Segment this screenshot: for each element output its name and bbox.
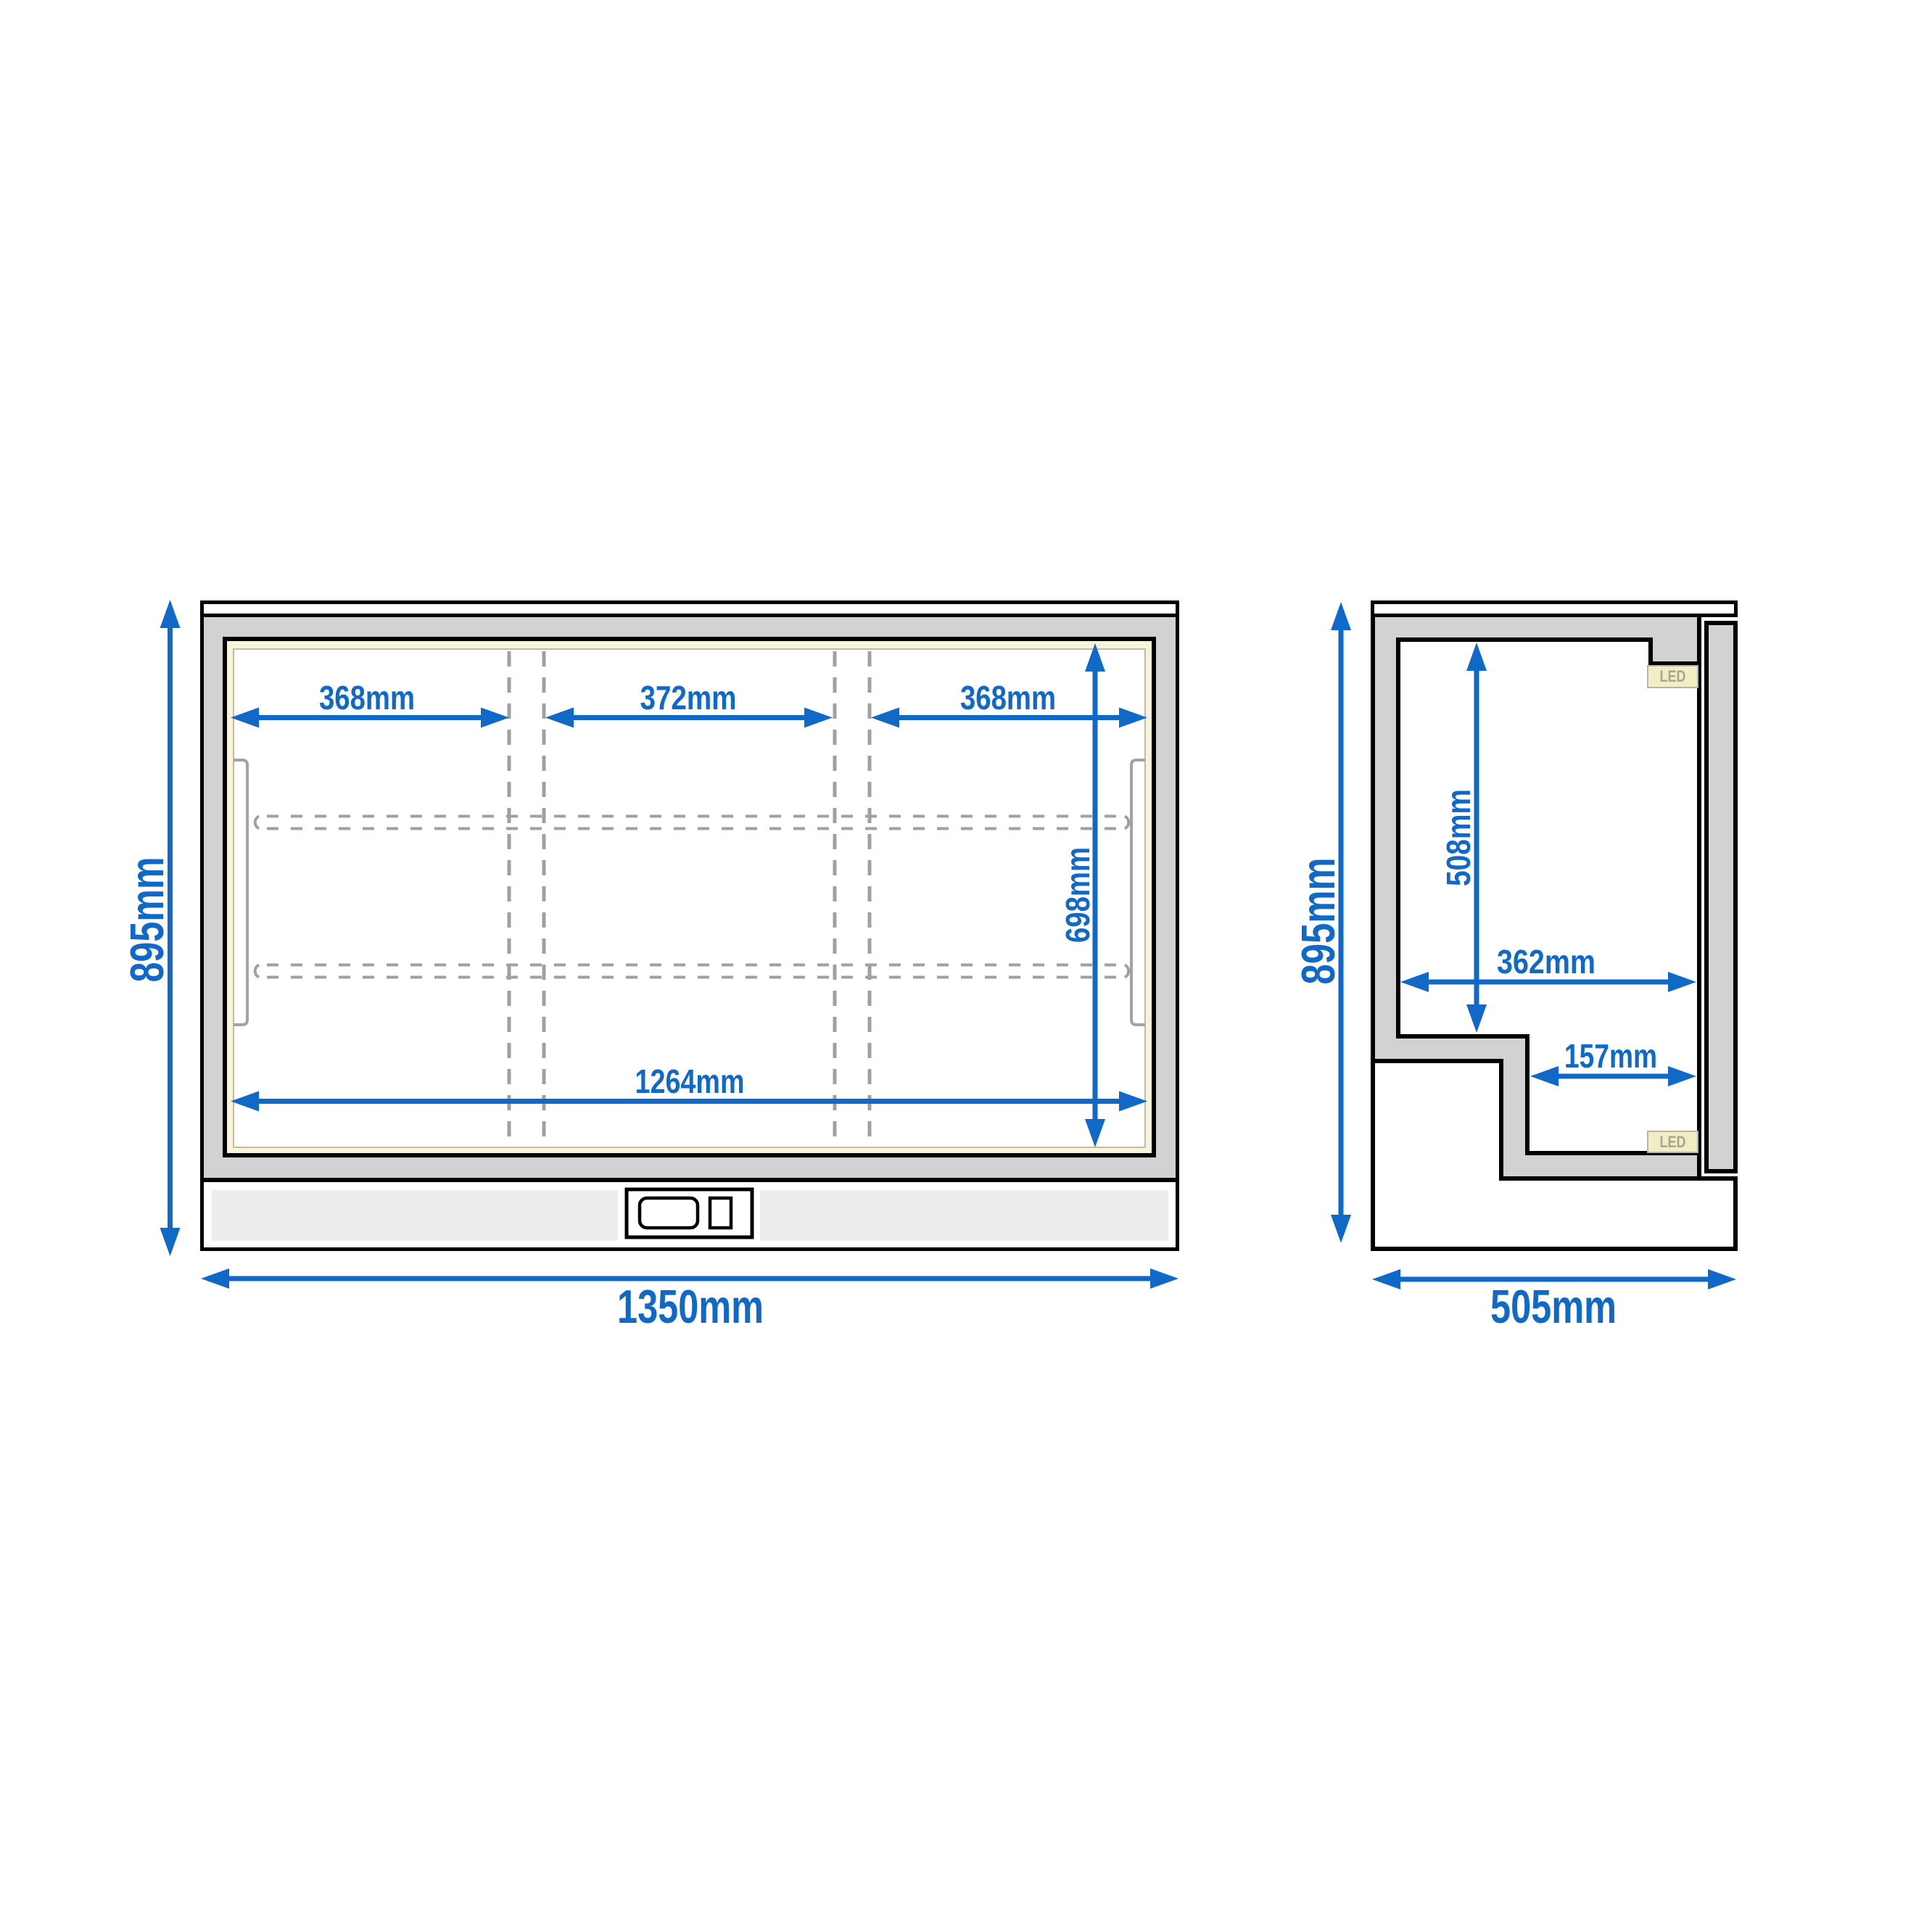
svg-text:372mm: 372mm <box>640 679 737 717</box>
svg-text:508mm: 508mm <box>1440 789 1477 886</box>
svg-text:LED: LED <box>1660 667 1686 685</box>
svg-text:368mm: 368mm <box>960 679 1056 717</box>
svg-text:895mm: 895mm <box>120 857 173 983</box>
svg-text:505mm: 505mm <box>1490 1280 1617 1333</box>
svg-text:1350mm: 1350mm <box>617 1280 764 1333</box>
svg-text:698mm: 698mm <box>1059 847 1097 943</box>
svg-text:362mm: 362mm <box>1497 943 1595 981</box>
svg-text:1264mm: 1264mm <box>635 1062 745 1100</box>
svg-text:895mm: 895mm <box>1292 858 1345 985</box>
svg-text:368mm: 368mm <box>319 679 415 717</box>
svg-text:157mm: 157mm <box>1564 1037 1657 1075</box>
svg-text:LED: LED <box>1660 1133 1686 1151</box>
